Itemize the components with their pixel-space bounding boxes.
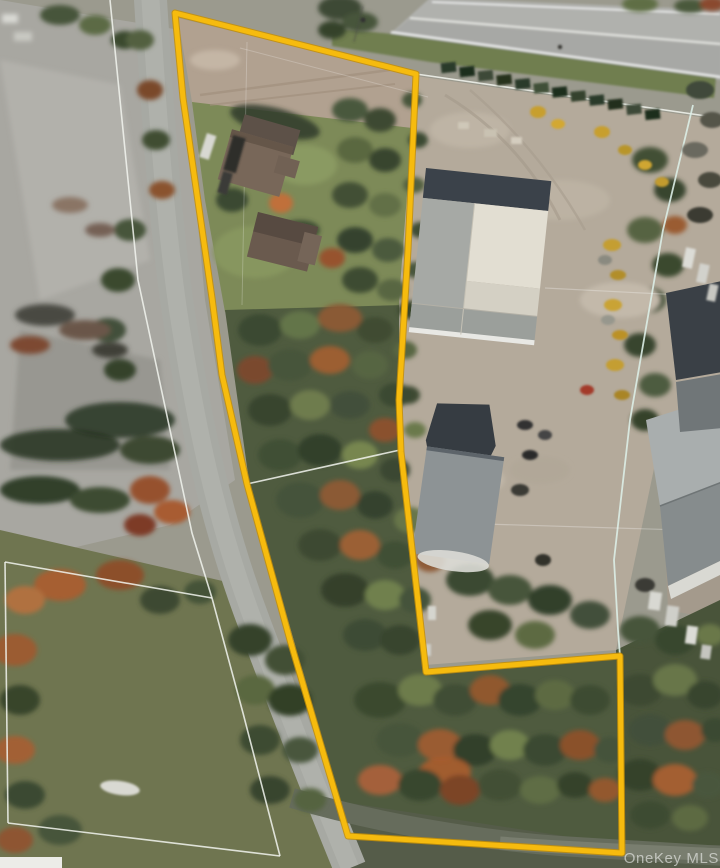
watermark: OneKey MLS — [624, 850, 719, 867]
aerial-map-image: OneKey MLS — [0, 0, 720, 868]
attribution-box — [0, 857, 62, 868]
industrial-building — [409, 168, 552, 345]
neighbor-roof-gray — [676, 374, 720, 432]
utility-pole — [361, 18, 366, 23]
utility-pole — [558, 45, 562, 49]
satellite-map-canvas: OneKey MLS — [0, 0, 720, 868]
